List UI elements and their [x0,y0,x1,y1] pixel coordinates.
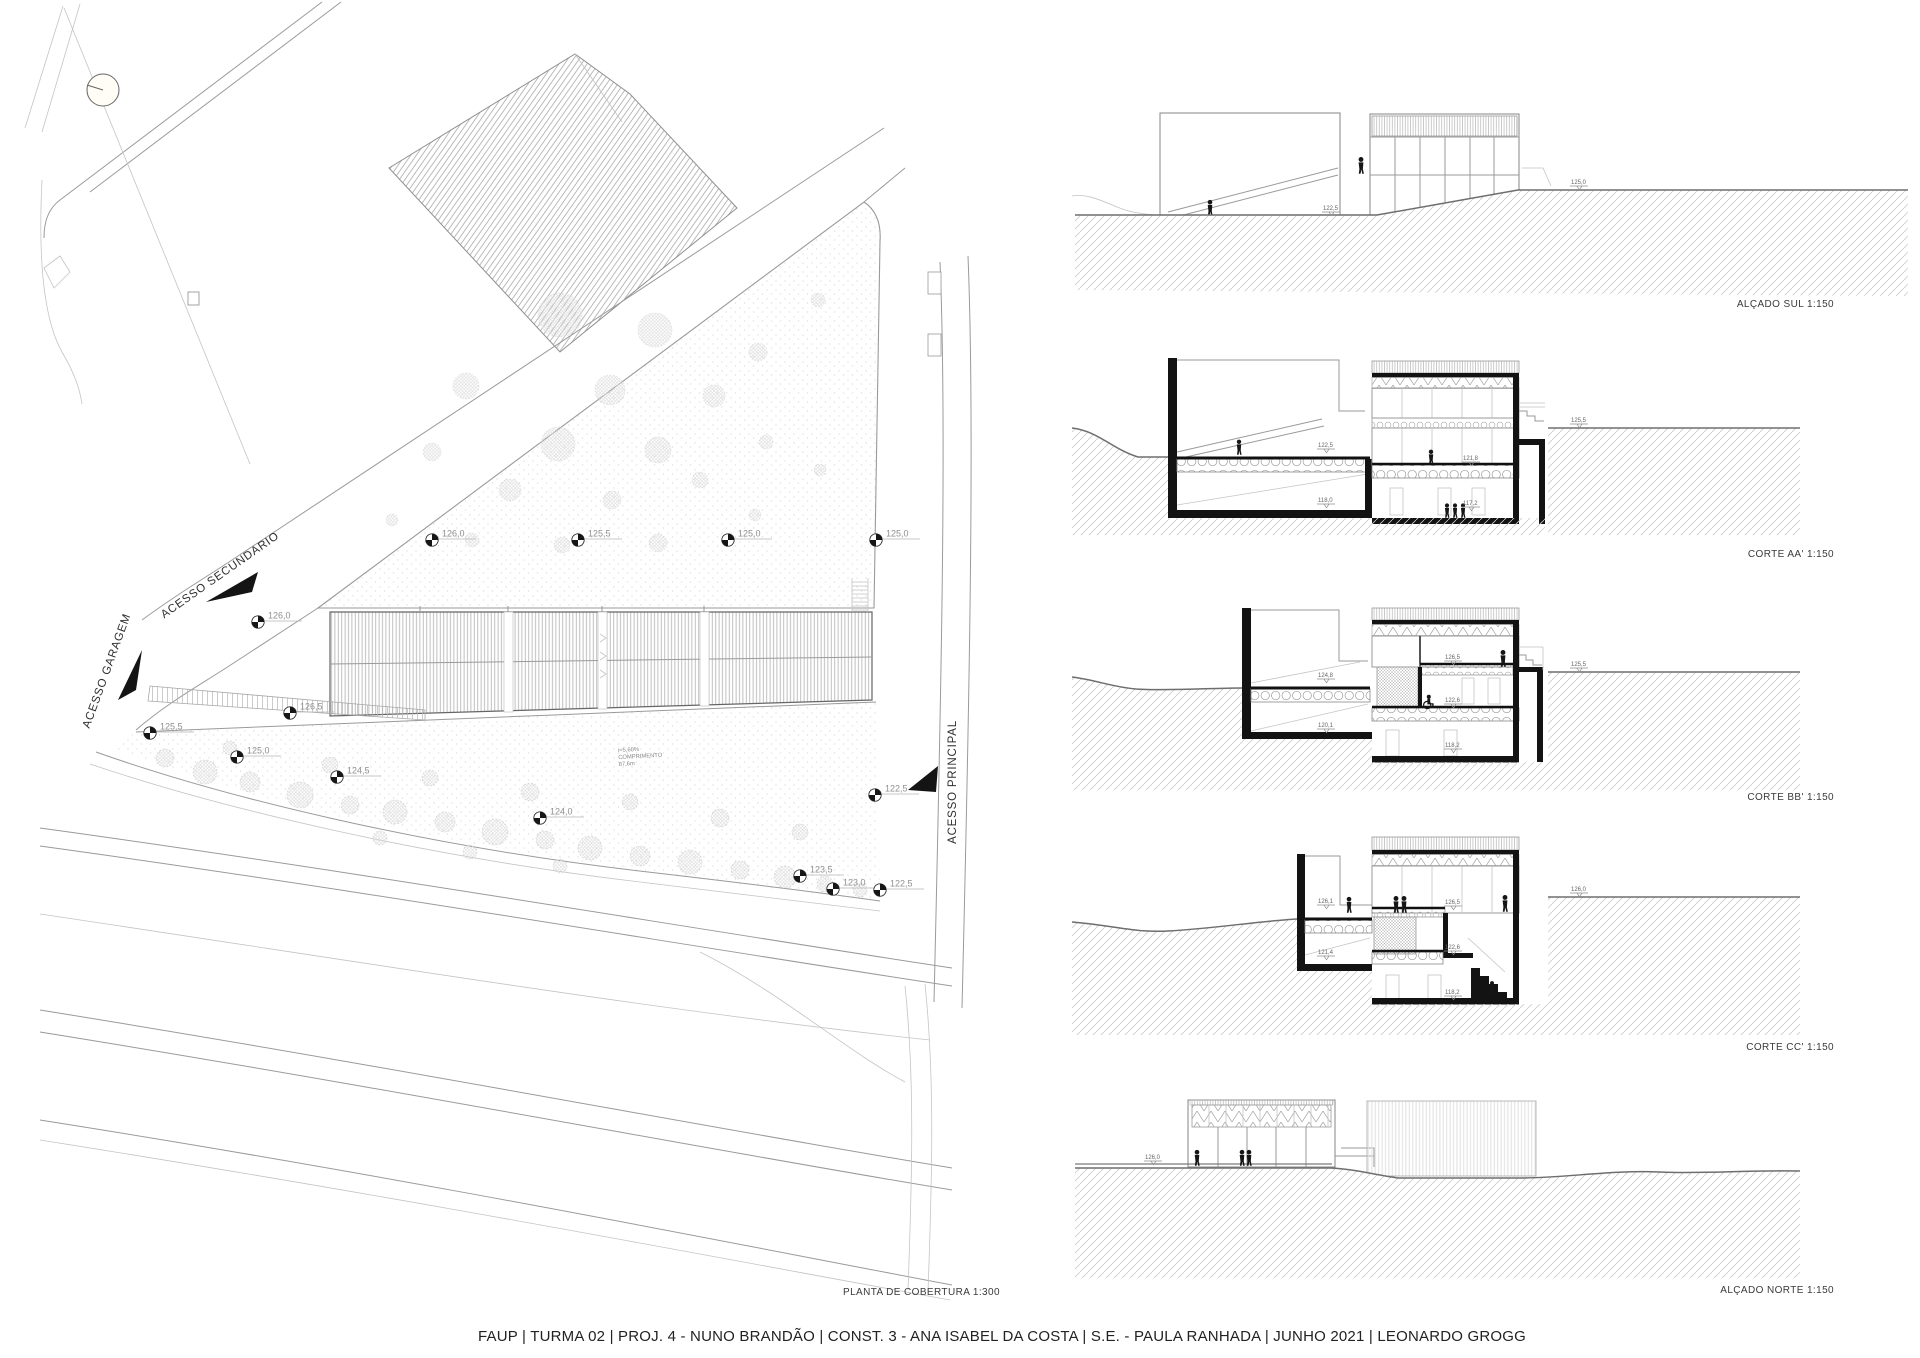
spot-elevation-marker: 122,5 [874,879,924,897]
svg-text:123,0: 123,0 [843,878,866,888]
ground-hatch [1075,1168,1800,1278]
level-mark: 120,1 [1317,723,1335,733]
drawing-corte-cc: 126,1 121,4 126,5 122,6 118,2 126,0 CORT… [1072,837,1834,1053]
verge-surface [112,702,880,901]
principal-access-arrow-icon [908,766,938,792]
neighbor-block [1367,1101,1536,1176]
drawing-alcado-norte: 126,0 ALÇADO NORTE 1:150 [1075,1100,1834,1296]
drawing-title: CORTE BB' 1:150 [1747,792,1834,803]
architecture-sheet: i=5,60% COMPRIMENTO 87,6m 126,0 125,5 12… [0,0,1920,1358]
svg-text:124,0: 124,0 [550,807,573,817]
svg-text:122,6: 122,6 [1445,698,1461,704]
ground-hatch [1072,672,1800,790]
svg-text:124,5: 124,5 [347,766,370,776]
site-plan-title: PLANTA DE COBERTURA 1:300 [843,1287,1000,1298]
svg-text:126,5: 126,5 [300,702,323,712]
ground-hatch [1072,428,1800,535]
drawing-title: CORTE AA' 1:150 [1748,549,1834,560]
person-silhouette [1429,450,1434,465]
label-acesso-garagem: ACESSO GARAGEM [81,612,134,730]
level-mark: 125,0 [1570,180,1588,190]
ground-hatch [1072,897,1800,1035]
svg-text:126,5: 126,5 [1445,655,1461,661]
level-mark: 118,0 [1317,498,1335,508]
south-roads [40,828,952,1300]
svg-text:126,5: 126,5 [1445,900,1461,906]
svg-text:125,5: 125,5 [588,529,611,539]
ramp-length-note: 87,6m [619,761,636,768]
svg-text:120,1: 120,1 [1318,723,1334,729]
svg-text:117,2: 117,2 [1463,501,1478,507]
label-acesso-principal: ACESSO PRINCIPAL [947,720,959,844]
level-mark: 118,2 [1444,743,1462,753]
person-silhouette [1237,440,1242,455]
svg-text:126,0: 126,0 [1145,1155,1161,1161]
svg-text:122,5: 122,5 [1323,206,1339,212]
svg-text:121,8: 121,8 [1463,456,1479,462]
north-symbol [87,74,119,106]
person-silhouette [1503,895,1508,912]
title-block: FAUP | TURMA 02 | PROJ. 4 - NUNO BRANDÃO… [82,1328,1920,1345]
level-mark: 125,5 [1570,662,1588,672]
svg-text:122,5: 122,5 [890,879,913,889]
ramp-slope-note: i=5,60% [618,747,639,754]
level-mark: 126,0 [1144,1155,1162,1165]
level-mark: 122,5 [1317,443,1335,453]
person-silhouette [1347,897,1352,913]
svg-text:122,5: 122,5 [1318,443,1334,449]
svg-text:123,5: 123,5 [810,865,833,875]
drawing-title: ALÇADO NORTE 1:150 [1720,1285,1834,1296]
label-acesso-secundario: ACESSO SECUNDARIO [159,530,282,621]
garage-access-arrow-icon [118,650,142,700]
svg-text:122,6: 122,6 [1445,945,1461,951]
svg-text:124,8: 124,8 [1318,673,1334,679]
svg-text:125,5: 125,5 [160,722,183,732]
main-building-roof [330,606,872,716]
drawing-corte-aa: 122,5 118,0 121,8 117,2 125,5 CORTE AA' … [1072,358,1834,560]
level-mark: 125,5 [1570,418,1588,428]
level-mark: 121,4 [1317,950,1335,960]
plan-small-structure [188,292,199,305]
person-silhouette [1359,157,1364,174]
level-mark: 126,0 [1570,887,1588,897]
drawing-title: CORTE CC' 1:150 [1746,1042,1834,1053]
spot-elevation-marker: 125,0 [870,529,920,547]
svg-text:125,5: 125,5 [1571,662,1587,668]
svg-text:118,0: 118,0 [1318,498,1333,504]
svg-text:122,5: 122,5 [885,784,908,794]
level-mark: 124,8 [1317,673,1335,683]
drawing-alcado-sul: 122,5 125,0 ALÇADO SUL 1:150 [1072,113,1908,310]
svg-text:126,0: 126,0 [1571,887,1587,893]
svg-text:126,0: 126,0 [442,529,465,539]
spot-elevation-marker: 126,0 [252,611,302,629]
level-mark: 126,5 [1444,900,1462,910]
svg-text:118,2: 118,2 [1445,743,1460,749]
svg-text:118,2: 118,2 [1445,990,1460,996]
drawing-canvas: i=5,60% COMPRIMENTO 87,6m 126,0 125,5 12… [0,0,1920,1358]
svg-text:125,5: 125,5 [1571,418,1587,424]
drawing-title: ALÇADO SUL 1:150 [1737,299,1834,310]
svg-text:125,0: 125,0 [247,746,270,756]
level-mark: 126,1 [1317,899,1335,909]
person-silhouette [1453,503,1458,517]
svg-text:121,4: 121,4 [1318,950,1334,956]
svg-text:125,0: 125,0 [738,529,761,539]
site-plan: i=5,60% COMPRIMENTO 87,6m 126,0 125,5 12… [25,2,1000,1300]
svg-text:125,0: 125,0 [886,529,909,539]
drawing-corte-bb: 124,8 120,1 126,5 122,6 118,2 125,5 CORT… [1072,608,1834,803]
sheet-title: FAUP | TURMA 02 | PROJ. 4 - NUNO BRANDÃO… [478,1328,1526,1345]
person-silhouette [1445,503,1450,517]
svg-text:126,1: 126,1 [1318,899,1334,905]
svg-text:125,0: 125,0 [1571,180,1587,186]
svg-text:126,0: 126,0 [268,611,291,621]
